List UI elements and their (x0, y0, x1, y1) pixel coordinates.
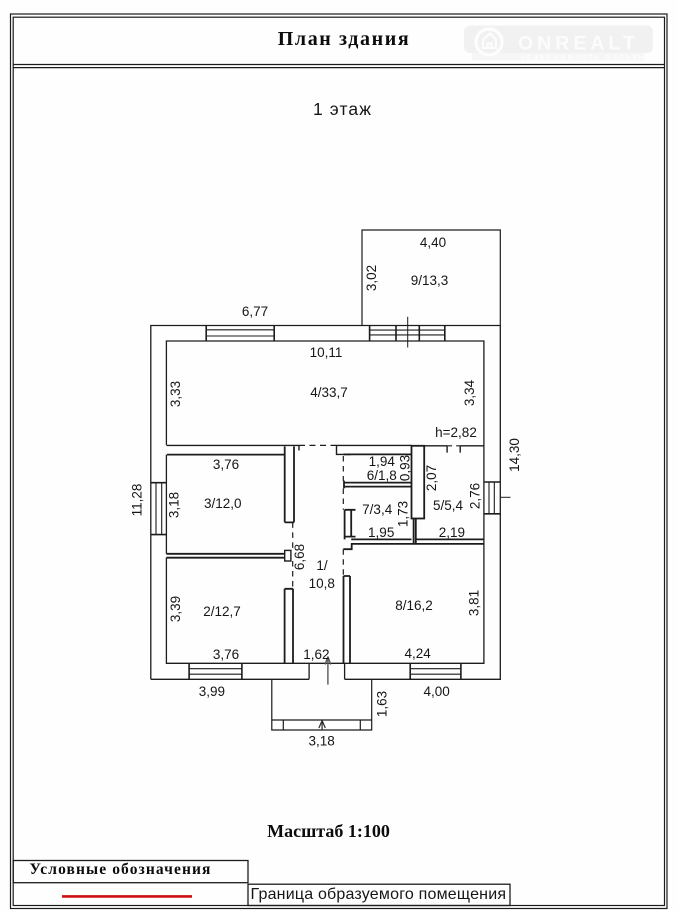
svg-text:1,62: 1,62 (303, 647, 329, 662)
svg-text:3,02: 3,02 (364, 265, 379, 291)
svg-text:3,99: 3,99 (199, 684, 225, 699)
svg-text:8/16,2: 8/16,2 (395, 598, 433, 613)
svg-text:1,63: 1,63 (375, 691, 390, 717)
svg-text:4,40: 4,40 (420, 235, 446, 250)
svg-text:НЕДВИЖИМОСТЬ ОНЛАЙН: НЕДВИЖИМОСТЬ ОНЛАЙН (520, 53, 645, 62)
svg-text:ONREALT: ONREALT (518, 33, 639, 55)
svg-text:3,81: 3,81 (467, 590, 482, 616)
svg-text:6,68: 6,68 (292, 544, 307, 570)
svg-text:2,76: 2,76 (468, 483, 483, 509)
svg-text:2/12,7: 2/12,7 (203, 604, 241, 619)
svg-text:3,18: 3,18 (308, 734, 334, 749)
svg-text:4,00: 4,00 (423, 684, 449, 699)
svg-text:7/3,4: 7/3,4 (362, 502, 393, 517)
svg-text:0,93: 0,93 (398, 455, 413, 481)
svg-text:10,8: 10,8 (309, 576, 335, 591)
svg-text:3,76: 3,76 (213, 457, 239, 472)
svg-text:h=2,82: h=2,82 (435, 425, 477, 440)
svg-text:3/12,0: 3/12,0 (204, 496, 242, 511)
svg-text:3,34: 3,34 (462, 379, 477, 406)
svg-text:Масштаб 1:100: Масштаб 1:100 (267, 821, 390, 841)
svg-text:9/13,3: 9/13,3 (411, 273, 449, 288)
svg-text:1,73: 1,73 (396, 501, 411, 527)
svg-text:1/: 1/ (316, 558, 328, 573)
svg-text:4/33,7: 4/33,7 (310, 385, 348, 400)
svg-text:10,11: 10,11 (310, 345, 343, 360)
svg-text:1 этаж: 1 этаж (313, 99, 372, 119)
svg-text:6/1,8: 6/1,8 (367, 468, 397, 483)
svg-text:6,77: 6,77 (242, 304, 268, 319)
svg-text:4,24: 4,24 (404, 646, 431, 661)
svg-text:3,76: 3,76 (213, 647, 239, 662)
svg-text:2,19: 2,19 (439, 525, 465, 540)
svg-text:3,18: 3,18 (167, 492, 182, 518)
svg-text:3,33: 3,33 (168, 381, 183, 407)
svg-text:2,07: 2,07 (424, 465, 439, 491)
svg-text:1,95: 1,95 (368, 525, 394, 540)
svg-text:11,28: 11,28 (130, 484, 145, 517)
svg-text:План здания: План здания (278, 28, 411, 50)
svg-text:14,30: 14,30 (507, 438, 522, 472)
svg-text:1,94: 1,94 (369, 454, 396, 469)
svg-text:Условные обозначения: Условные обозначения (30, 861, 212, 878)
svg-text:5/5,4: 5/5,4 (433, 498, 464, 513)
svg-text:3,39: 3,39 (168, 596, 183, 622)
svg-text:Граница образуемого помещения: Граница образуемого помещения (251, 886, 507, 903)
